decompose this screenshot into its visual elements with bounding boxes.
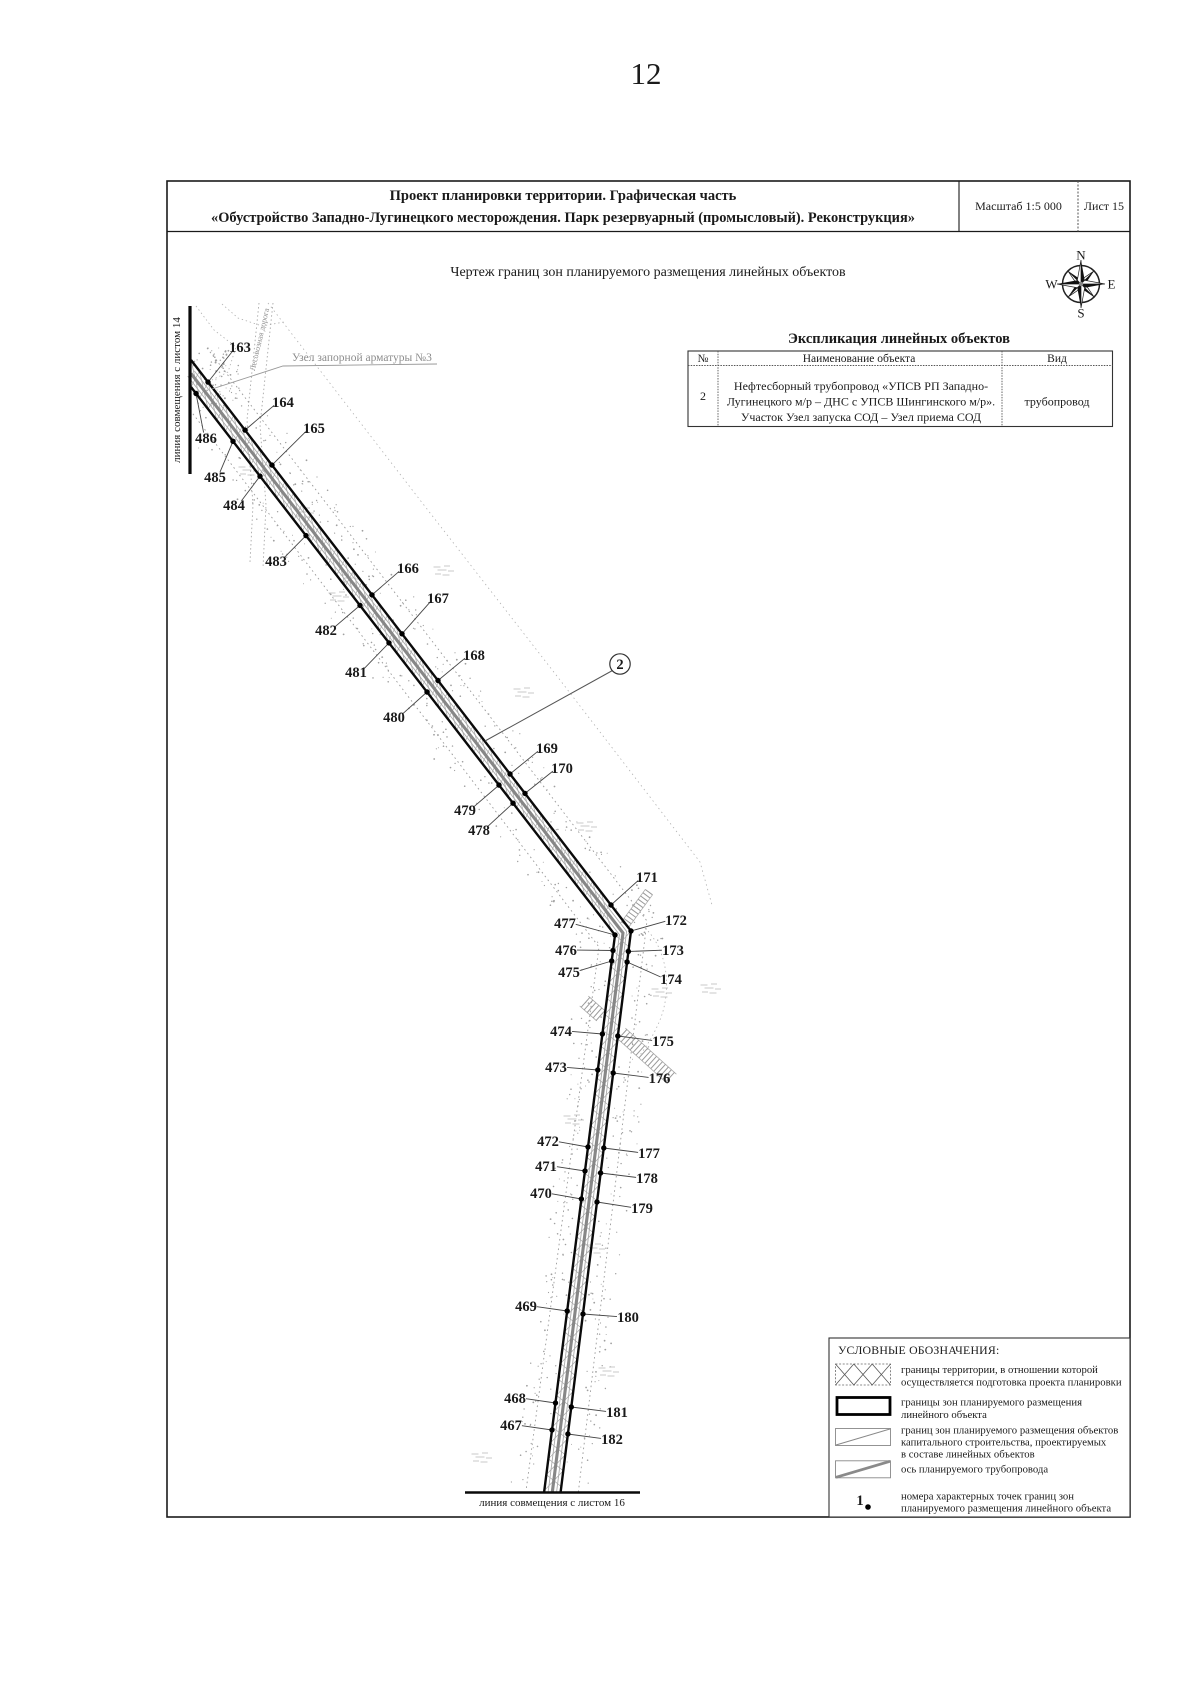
- svg-text:167: 167: [427, 591, 449, 607]
- svg-text:линия совмещения с листом 14: линия совмещения с листом 14: [171, 317, 183, 463]
- svg-text:477: 477: [554, 916, 576, 932]
- svg-text:485: 485: [204, 470, 226, 486]
- svg-text:179: 179: [631, 1201, 653, 1217]
- svg-text:166: 166: [397, 561, 419, 577]
- svg-text:178: 178: [636, 1171, 658, 1187]
- svg-text:Чертеж границ зон планируемого: Чертеж границ зон планируемого размещени…: [450, 265, 846, 280]
- svg-text:469: 469: [515, 1299, 537, 1315]
- svg-text:линейного объекта: линейного объекта: [901, 1409, 987, 1421]
- svg-text:границы территории, в отношени: границы территории, в отношении которой: [901, 1364, 1098, 1376]
- svg-text:476: 476: [555, 943, 577, 959]
- svg-text:2: 2: [700, 389, 706, 403]
- svg-text:Лист 15: Лист 15: [1084, 199, 1124, 213]
- svg-text:486: 486: [195, 431, 217, 447]
- svg-text:169: 169: [536, 741, 558, 757]
- svg-text:171: 171: [636, 870, 658, 886]
- svg-text:осуществляется подготовка прое: осуществляется подготовка проекта планир…: [901, 1377, 1122, 1389]
- svg-text:E: E: [1108, 277, 1116, 292]
- svg-text:Экспликация линейных объектов: Экспликация линейных объектов: [788, 331, 1010, 347]
- svg-text:линия совмещения с листом 16: линия совмещения с листом 16: [479, 1497, 625, 1509]
- svg-text:173: 173: [662, 943, 684, 959]
- svg-text:175: 175: [652, 1034, 674, 1050]
- svg-text:12: 12: [631, 56, 662, 91]
- svg-text:472: 472: [537, 1134, 559, 1150]
- svg-text:484: 484: [223, 498, 245, 514]
- svg-text:границы зон планируемого разме: границы зон планируемого размещения: [901, 1397, 1082, 1409]
- svg-text:483: 483: [265, 554, 287, 570]
- svg-text:Узел запорной арматуры №3: Узел запорной арматуры №3: [292, 352, 432, 364]
- svg-text:1: 1: [856, 1493, 863, 1509]
- svg-text:475: 475: [558, 965, 580, 981]
- svg-text:482: 482: [315, 623, 337, 639]
- svg-text:163: 163: [229, 340, 251, 356]
- svg-text:481: 481: [345, 665, 367, 681]
- svg-text:164: 164: [272, 395, 294, 411]
- svg-text:S: S: [1077, 306, 1084, 321]
- svg-text:W: W: [1045, 277, 1058, 292]
- svg-text:170: 170: [551, 761, 573, 777]
- svg-text:480: 480: [383, 710, 405, 726]
- svg-text:Лугинецкого м/р – ДНС с УПСВ Ш: Лугинецкого м/р – ДНС с УПСВ Шингинского…: [727, 395, 995, 409]
- svg-text:468: 468: [504, 1391, 526, 1407]
- svg-text:ось планируемого трубопровода: ось планируемого трубопровода: [901, 1464, 1048, 1476]
- svg-text:176: 176: [649, 1071, 671, 1087]
- svg-text:182: 182: [601, 1432, 623, 1448]
- svg-text:№: №: [698, 353, 709, 365]
- svg-text:Наименование объекта: Наименование объекта: [803, 353, 916, 365]
- svg-text:180: 180: [617, 1310, 639, 1326]
- svg-text:2: 2: [616, 657, 623, 673]
- svg-text:174: 174: [660, 972, 682, 988]
- svg-text:181: 181: [606, 1405, 628, 1421]
- svg-text:границ зон планируемого размещ: границ зон планируемого размещения объек…: [901, 1425, 1118, 1437]
- svg-text:Участок Узел запуска СОД – Узе: Участок Узел запуска СОД – Узел приема С…: [741, 410, 981, 424]
- svg-text:трубопровод: трубопровод: [1025, 395, 1090, 409]
- svg-text:177: 177: [638, 1146, 660, 1162]
- svg-text:Масштаб 1:5 000: Масштаб 1:5 000: [975, 199, 1062, 213]
- svg-text:473: 473: [545, 1060, 567, 1076]
- svg-text:467: 467: [500, 1418, 522, 1434]
- svg-text:УСЛОВНЫЕ ОБОЗНАЧЕНИЯ:: УСЛОВНЫЕ ОБОЗНАЧЕНИЯ:: [838, 1343, 999, 1357]
- svg-text:168: 168: [463, 648, 485, 664]
- svg-text:479: 479: [454, 803, 476, 819]
- svg-text:172: 172: [665, 913, 687, 929]
- svg-text:165: 165: [303, 421, 325, 437]
- svg-text:471: 471: [535, 1159, 557, 1175]
- svg-text:Проект планировки территории.: Проект планировки территории. Графическа…: [390, 188, 737, 204]
- svg-text:Нефтесборный трубопровод «УПСВ: Нефтесборный трубопровод «УПСВ РП Западн…: [734, 379, 988, 393]
- svg-text:капитального строительства, пр: капитального строительства, проектируемы…: [901, 1437, 1107, 1449]
- svg-text:Вид: Вид: [1047, 353, 1067, 365]
- svg-text:планируемого размещения линейн: планируемого размещения линейного объект…: [901, 1503, 1111, 1515]
- svg-text:«Обустройство Западно-Лугинецк: «Обустройство Западно-Лугинецкого местор…: [211, 210, 915, 226]
- svg-text:номера характерных точек грани: номера характерных точек границ зон: [901, 1491, 1074, 1503]
- svg-text:в составе линейных объектов: в составе линейных объектов: [901, 1449, 1035, 1461]
- svg-text:478: 478: [468, 823, 490, 839]
- svg-text:470: 470: [530, 1186, 552, 1202]
- svg-text:N: N: [1076, 248, 1086, 263]
- svg-text:474: 474: [550, 1024, 572, 1040]
